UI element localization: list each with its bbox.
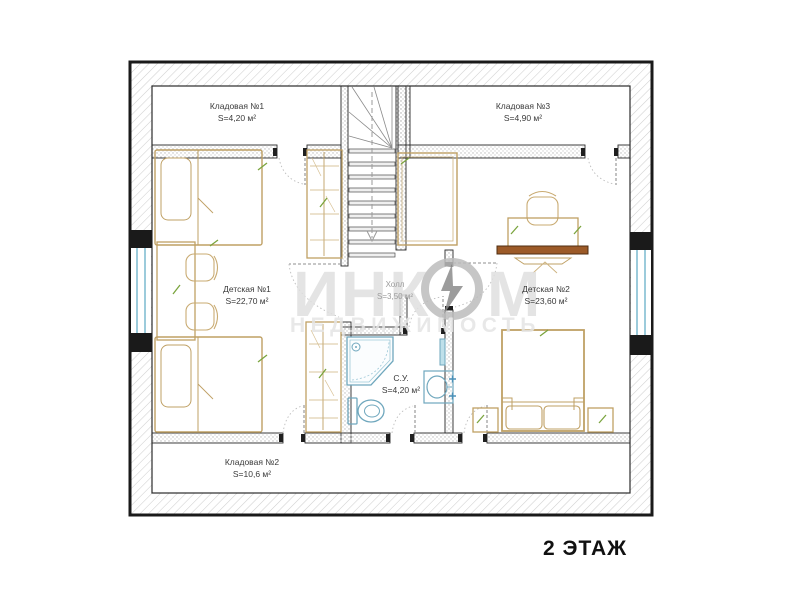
room-area: S=4,20 м² bbox=[382, 385, 420, 395]
room-label-kladovaya2: Кладовая №2 S=10,6 м² bbox=[225, 457, 280, 479]
room-area: S=4,90 м² bbox=[504, 113, 542, 123]
floor-title: 2 ЭТАЖ bbox=[543, 537, 627, 560]
stairs-icon bbox=[349, 87, 395, 257]
room-label-kladovaya1: Кладовая №1 S=4,20 м² bbox=[210, 101, 265, 123]
room-name: Детская №2 bbox=[522, 284, 570, 294]
shower-icon bbox=[347, 337, 393, 385]
window-right-icon bbox=[630, 232, 652, 355]
chair-icon bbox=[527, 192, 558, 226]
nightstand-icon bbox=[473, 408, 613, 432]
room-area: S=4,20 м² bbox=[218, 113, 256, 123]
room-label-detskaya1: Детская №1 S=22,70 м² bbox=[223, 284, 271, 306]
room-area: S=22,70 м² bbox=[226, 296, 269, 306]
bed-icon bbox=[155, 150, 262, 245]
room-label-su: С.У. S=4,20 м² bbox=[382, 373, 420, 395]
room-area: S=23,60 м² bbox=[525, 296, 568, 306]
toilet-icon bbox=[348, 398, 384, 424]
wardrobe-icon bbox=[306, 322, 341, 432]
room-area: S=3,50 м² bbox=[377, 292, 413, 301]
floor-plan-drawing: ИНК М НЕДВИЖИМОСТЬ Кладовая №1 S=4,20 м²… bbox=[0, 0, 800, 600]
watermark-subtitle: НЕДВИЖИМОСТЬ bbox=[290, 314, 541, 337]
room-name: Кладовая №2 bbox=[225, 457, 280, 467]
room-name: Холл bbox=[386, 280, 405, 289]
radiator-icon bbox=[440, 339, 445, 365]
closet-icon bbox=[398, 153, 457, 245]
wardrobe-icon bbox=[307, 150, 342, 258]
bed-icon bbox=[155, 337, 262, 432]
room-area: S=10,6 м² bbox=[233, 469, 271, 479]
room-name: Кладовая №1 bbox=[210, 101, 265, 111]
floor-plan-page: ИНК М НЕДВИЖИМОСТЬ Кладовая №1 S=4,20 м²… bbox=[0, 0, 800, 600]
room-name: Детская №1 bbox=[223, 284, 271, 294]
room-name: С.У. bbox=[393, 373, 408, 383]
window-left-icon bbox=[130, 230, 152, 352]
room-label-kladovaya3: Кладовая №3 S=4,90 м² bbox=[496, 101, 551, 123]
chair-icon bbox=[186, 303, 218, 330]
desk-icon bbox=[508, 218, 578, 248]
watermark: ИНК М НЕДВИЖИМОСТЬ bbox=[290, 258, 542, 337]
chair-icon bbox=[186, 254, 218, 281]
bed-icon bbox=[502, 330, 584, 431]
room-name: Кладовая №3 bbox=[496, 101, 551, 111]
